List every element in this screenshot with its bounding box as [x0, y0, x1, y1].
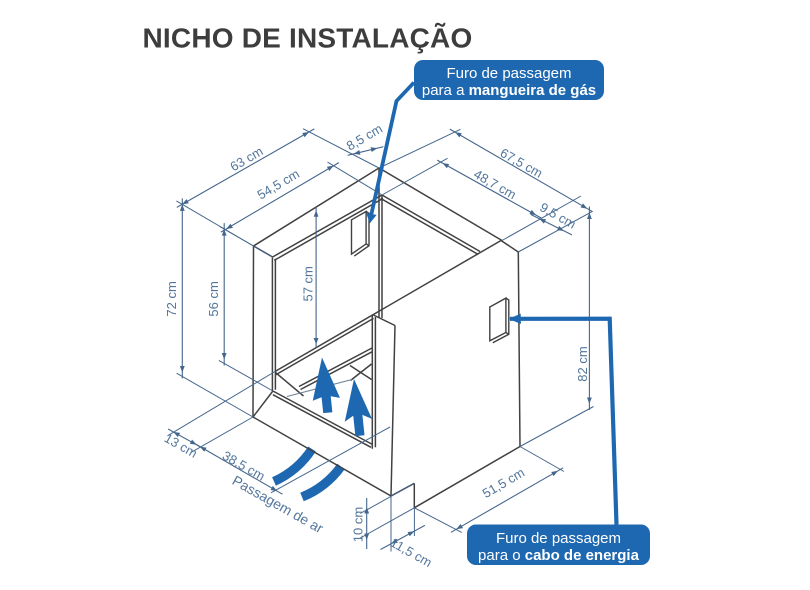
svg-text:67,5 cm: 67,5 cm — [498, 145, 546, 181]
svg-text:9,5 cm: 9,5 cm — [537, 199, 578, 231]
svg-text:56 cm: 56 cm — [206, 281, 221, 316]
svg-text:51,5 cm: 51,5 cm — [480, 465, 527, 501]
svg-text:Furo de passagem: Furo de passagem — [446, 65, 571, 82]
svg-text:Furo de passagem: Furo de passagem — [496, 530, 621, 547]
svg-text:57 cm: 57 cm — [301, 266, 316, 301]
svg-text:48,7 cm: 48,7 cm — [471, 166, 519, 202]
svg-text:8,5 cm: 8,5 cm — [344, 121, 385, 154]
svg-text:NICHO DE INSTALAÇÃO: NICHO DE INSTALAÇÃO — [143, 23, 473, 54]
svg-text:72 cm: 72 cm — [164, 281, 179, 316]
svg-text:10 cm: 10 cm — [351, 507, 366, 542]
svg-text:54,5 cm: 54,5 cm — [255, 166, 302, 202]
svg-text:para a mangueira de gás: para a mangueira de gás — [422, 82, 596, 99]
svg-text:63 cm: 63 cm — [227, 143, 265, 174]
svg-text:82 cm: 82 cm — [575, 346, 590, 381]
svg-text:para o cabo de energia: para o cabo de energia — [478, 547, 640, 564]
svg-text:11,5 cm: 11,5 cm — [388, 535, 435, 570]
svg-text:13 cm: 13 cm — [162, 430, 200, 460]
